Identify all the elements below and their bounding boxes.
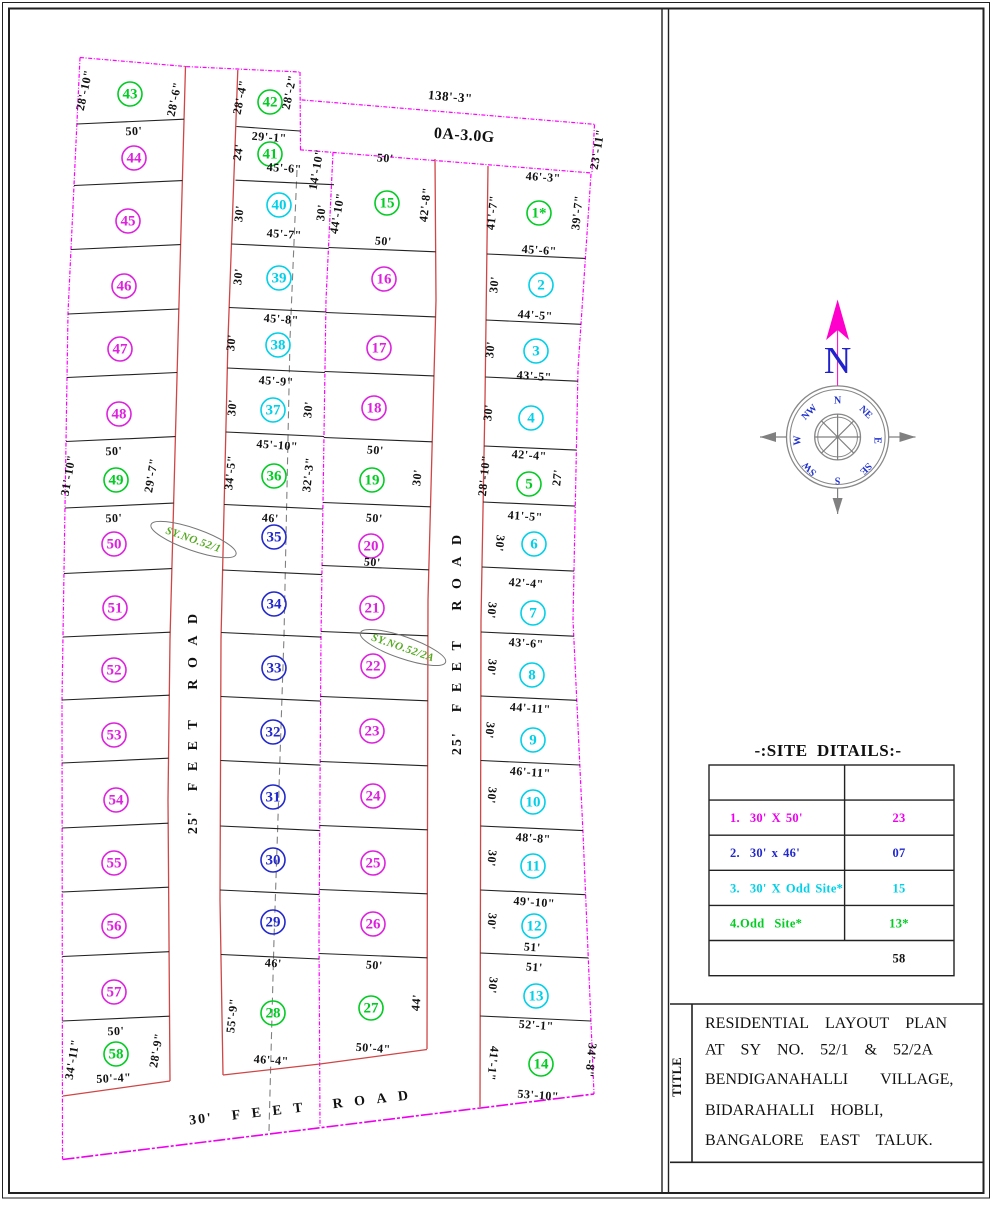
svg-text:50': 50': [363, 554, 381, 569]
svg-text:45'-9": 45'-9": [258, 373, 294, 389]
svg-text:30' F E E T R O A D: 30' F E E T R O A D: [188, 1088, 410, 1128]
svg-text:24': 24': [230, 143, 247, 162]
svg-text:30': 30': [409, 468, 425, 486]
svg-text:34'-5": 34'-5": [221, 454, 239, 490]
svg-text:18: 18: [367, 401, 382, 417]
svg-text:0A-3.0G: 0A-3.0G: [433, 125, 495, 146]
svg-text:46': 46': [264, 955, 282, 970]
svg-text:45'-8": 45'-8": [263, 311, 299, 327]
svg-text:30': 30': [484, 912, 500, 930]
svg-text:30': 30': [482, 340, 498, 358]
svg-text:35: 35: [267, 530, 282, 546]
svg-text:42'-4": 42'-4": [511, 447, 547, 463]
svg-text:51: 51: [108, 601, 123, 617]
svg-text:40: 40: [272, 198, 287, 214]
svg-text:29'-7": 29'-7": [141, 457, 161, 494]
svg-text:BANGALORE EAST TALUK.: BANGALORE EAST TALUK.: [705, 1132, 933, 1149]
svg-text:27: 27: [364, 1001, 380, 1017]
svg-text:15: 15: [892, 881, 905, 895]
svg-text:S: S: [834, 475, 840, 486]
svg-text:27': 27': [549, 468, 565, 486]
svg-text:AT SY NO. 52/1 & 52/2A: AT SY NO. 52/1 & 52/2A: [705, 1042, 933, 1059]
svg-text:20: 20: [364, 539, 379, 555]
svg-text:30': 30': [231, 204, 247, 222]
svg-text:25' F E E T R O A D: 25' F E E T R O A D: [186, 612, 201, 834]
svg-text:50': 50': [374, 233, 392, 248]
svg-text:41'-7": 41'-7": [483, 194, 501, 230]
svg-text:24: 24: [366, 789, 382, 805]
svg-text:07: 07: [892, 846, 905, 860]
svg-text:51': 51': [525, 959, 543, 974]
svg-text:46'-4": 46'-4": [253, 1052, 289, 1068]
svg-text:50: 50: [107, 537, 122, 553]
svg-text:N: N: [834, 396, 842, 407]
svg-text:44: 44: [127, 151, 143, 167]
svg-text:28'-6": 28'-6": [164, 81, 185, 118]
svg-text:E: E: [872, 437, 883, 444]
svg-text:32'-3": 32'-3": [299, 456, 317, 492]
svg-text:11: 11: [526, 859, 540, 875]
svg-text:46'-11": 46'-11": [509, 764, 551, 781]
svg-text:39: 39: [272, 271, 287, 287]
svg-text:44'-11": 44'-11": [509, 700, 551, 717]
svg-text:45'-6": 45'-6": [521, 242, 557, 258]
svg-text:51': 51': [523, 939, 541, 954]
svg-text:29: 29: [266, 915, 281, 931]
svg-text:48: 48: [112, 407, 127, 423]
svg-text:52: 52: [107, 663, 122, 679]
svg-text:30': 30': [484, 849, 500, 867]
svg-text:50': 50': [125, 124, 142, 139]
svg-text:23: 23: [365, 724, 380, 740]
svg-text:1. 30' X 50': 1. 30' X 50': [730, 811, 803, 825]
svg-text:45'-6": 45'-6": [266, 160, 302, 176]
svg-text:44'-10": 44'-10": [327, 192, 348, 235]
svg-text:BENDIGANAHALLI VILLAGE,: BENDIGANAHALLI VILLAGE,: [705, 1071, 953, 1088]
svg-text:17: 17: [372, 341, 388, 357]
svg-text:12: 12: [527, 919, 542, 935]
svg-text:44': 44': [408, 993, 424, 1011]
svg-text:W: W: [793, 436, 804, 446]
svg-text:3: 3: [532, 344, 540, 360]
svg-text:30': 30': [484, 658, 500, 676]
svg-text:8: 8: [528, 668, 536, 684]
svg-text:14: 14: [534, 1057, 550, 1073]
svg-text:-:SITE DITAILS:-: -:SITE DITAILS:-: [754, 741, 901, 760]
svg-text:53'-10": 53'-10": [517, 1087, 559, 1104]
svg-text:30': 30': [484, 601, 500, 619]
svg-text:50': 50': [376, 150, 394, 165]
svg-text:30': 30': [480, 403, 496, 421]
svg-text:53: 53: [107, 728, 122, 744]
svg-text:30': 30': [313, 203, 329, 221]
svg-text:50': 50': [365, 957, 383, 972]
svg-text:43'-5": 43'-5": [516, 368, 552, 384]
svg-text:16: 16: [377, 272, 393, 288]
svg-text:NE: NE: [857, 404, 875, 422]
svg-text:28'-9": 28'-9": [146, 1032, 166, 1069]
svg-text:30': 30': [230, 267, 246, 285]
svg-text:28'-4": 28'-4": [230, 79, 251, 116]
svg-text:52'-1": 52'-1": [518, 1017, 554, 1033]
svg-text:15: 15: [380, 196, 395, 212]
svg-text:2: 2: [537, 278, 545, 294]
svg-text:22: 22: [366, 659, 381, 675]
svg-text:56: 56: [107, 919, 123, 935]
svg-text:4: 4: [527, 411, 535, 427]
svg-text:45'-7": 45'-7": [266, 226, 302, 242]
svg-text:28'-10": 28'-10": [475, 454, 493, 497]
svg-text:23: 23: [892, 811, 905, 825]
svg-text:23'-11": 23'-11": [587, 128, 608, 171]
svg-text:30': 30': [300, 400, 316, 418]
svg-text:2. 30' x 46': 2. 30' x 46': [730, 846, 800, 860]
svg-text:29'-1": 29'-1": [251, 129, 287, 145]
svg-text:N: N: [824, 340, 851, 382]
svg-text:30': 30': [482, 721, 498, 739]
svg-text:42'-8": 42'-8": [416, 186, 434, 222]
svg-text:47: 47: [113, 342, 129, 358]
svg-text:28'-10": 28'-10": [73, 68, 95, 112]
svg-text:30': 30': [484, 786, 500, 804]
svg-text:50': 50': [365, 510, 383, 525]
svg-text:10: 10: [526, 795, 541, 811]
svg-text:50': 50': [107, 1024, 124, 1039]
svg-text:7: 7: [529, 606, 537, 622]
svg-text:6: 6: [530, 537, 538, 553]
svg-text:SE: SE: [857, 460, 874, 477]
svg-text:30': 30': [492, 534, 508, 552]
svg-text:1*: 1*: [532, 206, 547, 222]
svg-text:34'-8": 34'-8": [582, 1042, 600, 1078]
svg-text:50': 50': [105, 511, 122, 526]
svg-text:41'-5": 41'-5": [507, 508, 543, 524]
svg-text:13*: 13*: [889, 916, 909, 930]
svg-text:49: 49: [109, 473, 124, 489]
svg-text:30': 30': [224, 398, 240, 416]
svg-text:30': 30': [486, 275, 502, 293]
svg-text:33: 33: [267, 661, 282, 677]
svg-text:50'-4": 50'-4": [355, 1040, 391, 1056]
svg-text:41'-1": 41'-1": [484, 1045, 502, 1081]
svg-text:28'-2": 28'-2": [279, 74, 300, 111]
svg-text:25: 25: [366, 856, 381, 872]
svg-text:44'-5": 44'-5": [517, 307, 553, 323]
svg-text:BIDARAHALLI HOBLI,: BIDARAHALLI HOBLI,: [705, 1102, 883, 1119]
svg-text:32: 32: [266, 725, 281, 741]
svg-text:30: 30: [266, 853, 281, 869]
svg-text:21: 21: [365, 601, 380, 617]
svg-text:26: 26: [366, 917, 382, 933]
svg-text:42'-4": 42'-4": [508, 575, 544, 591]
svg-text:48'-8": 48'-8": [515, 830, 551, 846]
svg-text:58: 58: [892, 952, 905, 966]
svg-text:28: 28: [266, 1006, 281, 1022]
svg-text:39'-7": 39'-7": [568, 194, 586, 230]
svg-text:46'-3": 46'-3": [525, 169, 561, 185]
svg-text:9: 9: [529, 733, 537, 749]
svg-text:55: 55: [107, 856, 122, 872]
svg-text:43'-6": 43'-6": [508, 635, 544, 651]
svg-text:3. 30' X Odd Site*: 3. 30' X Odd Site*: [730, 881, 843, 895]
svg-text:5: 5: [525, 477, 533, 493]
svg-text:57: 57: [107, 985, 123, 1001]
svg-text:25' F E E T R O A D: 25' F E E T R O A D: [450, 533, 465, 755]
svg-text:34: 34: [267, 597, 283, 613]
svg-text:38: 38: [271, 338, 286, 354]
svg-text:31'-10": 31'-10": [58, 454, 79, 497]
svg-text:30': 30': [485, 976, 501, 994]
svg-text:13: 13: [529, 989, 544, 1005]
svg-text:4.Odd Site*: 4.Odd Site*: [730, 916, 802, 930]
svg-text:TITLE: TITLE: [670, 1057, 684, 1097]
svg-text:RESIDENTIAL LAYOUT PLAN: RESIDENTIAL LAYOUT PLAN: [705, 1015, 948, 1032]
svg-text:30': 30': [223, 333, 239, 351]
svg-text:49'-10": 49'-10": [513, 894, 555, 911]
svg-text:50': 50': [366, 442, 384, 457]
svg-text:46: 46: [117, 279, 133, 295]
svg-text:50': 50': [105, 444, 122, 459]
svg-text:138'-3": 138'-3": [427, 87, 473, 106]
svg-text:34'-11": 34'-11": [62, 1038, 83, 1081]
svg-text:54: 54: [109, 793, 125, 809]
svg-text:46': 46': [261, 510, 279, 525]
svg-text:31: 31: [266, 790, 281, 806]
svg-text:42: 42: [263, 95, 278, 111]
svg-text:58: 58: [109, 1047, 124, 1063]
svg-text:43: 43: [123, 87, 138, 103]
svg-text:45: 45: [121, 214, 136, 230]
svg-text:45'-10": 45'-10": [256, 437, 298, 454]
svg-text:36: 36: [267, 469, 283, 485]
svg-text:37: 37: [266, 403, 282, 419]
svg-text:19: 19: [365, 473, 380, 489]
svg-text:55'-9": 55'-9": [223, 997, 241, 1033]
svg-text:50'-4": 50'-4": [96, 1070, 132, 1086]
